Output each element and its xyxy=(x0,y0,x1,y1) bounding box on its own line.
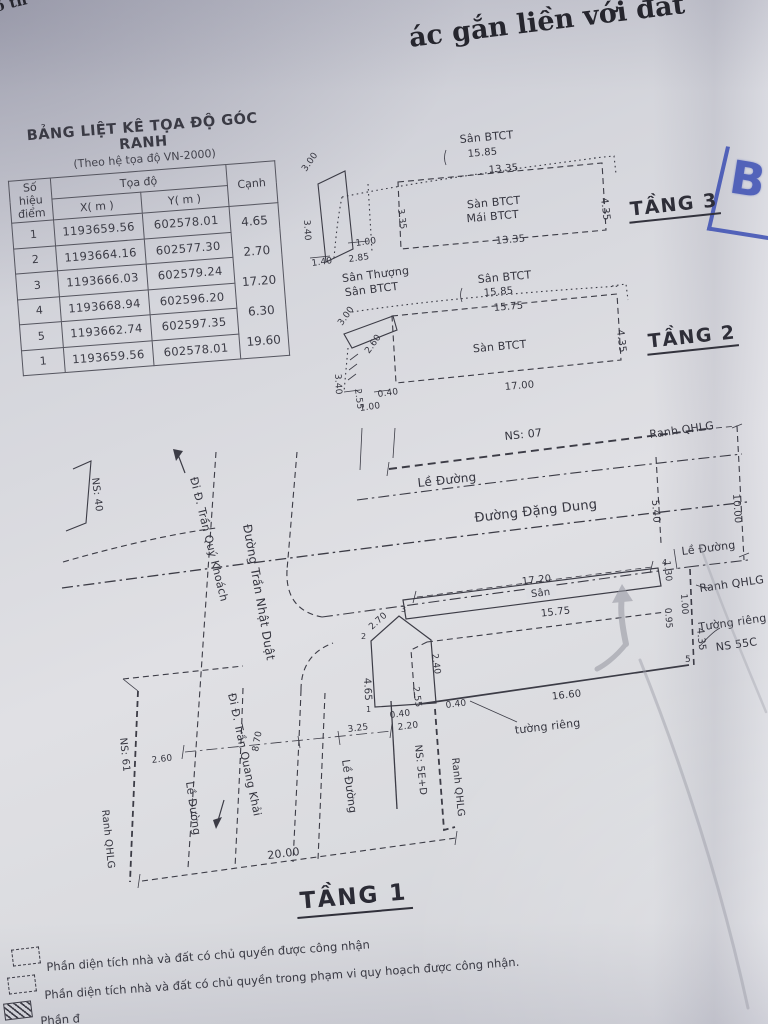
floor3-left-dotted xyxy=(334,197,342,258)
floor2-left-marks xyxy=(344,354,390,392)
dim-1-00-label: 1.00 xyxy=(678,594,689,616)
left-hatched-block xyxy=(371,616,436,707)
floor3-dim-slant: 3.00 xyxy=(300,151,320,174)
pen-arrow-shaft xyxy=(621,596,626,644)
inner-boundary-dashed xyxy=(411,612,666,702)
point-1-marker: 1 xyxy=(366,705,371,714)
pen-stray-curve-1 xyxy=(640,660,748,1008)
site-plan-drawing: Sân BTCT 15.85 13.35 Sàn BTCT Mái BTCT 4… xyxy=(0,0,768,1024)
le-duong-mid-label: Lề Đường xyxy=(339,759,359,814)
floor3-roof-corner xyxy=(594,156,616,174)
point-3-marker: 3 xyxy=(401,605,406,614)
dim-16-60-label: 16.60 xyxy=(551,688,582,702)
leader-tuong-rieng xyxy=(470,701,517,722)
street-tran-quang-khai-label: Đi Đ. Trần Quang Khải xyxy=(225,692,264,817)
floor2-dim-left: 3.40 xyxy=(332,374,343,395)
dim-0-95-label: 0.95 xyxy=(662,608,673,629)
ns40-bracket-symbol xyxy=(66,461,91,531)
floor2-inner-label: Sàn BTCT xyxy=(472,338,527,356)
san-label: Sân xyxy=(530,586,551,600)
boundary-lower-left xyxy=(123,666,243,679)
floor2-dim-s2: 1.00 xyxy=(359,401,381,414)
ns5ed-label: NS: 5E+D xyxy=(412,744,428,796)
le-duong-right-label: Lề Đường xyxy=(681,538,736,558)
ns61-label: NS: 61 xyxy=(117,737,132,772)
corner-tick xyxy=(123,679,138,691)
dim-8-70-label: 8.70 xyxy=(251,730,264,752)
legend-item-3: Phần đ xyxy=(40,1011,80,1024)
legend-icon-recognized xyxy=(11,946,41,966)
tuong-rieng-bottom-label: tường riêng xyxy=(514,716,581,736)
floor3-plan: Sân BTCT 15.85 13.35 Sàn BTCT Mái BTCT 4… xyxy=(300,128,616,299)
floor3-dim-right: 4.35 xyxy=(598,197,612,221)
ranh-qhlg-left-label: Ranh QHLG xyxy=(99,809,116,869)
ranh-qhlg-top-label: Ranh QHLG xyxy=(649,419,715,441)
street-centerline-dang-dung xyxy=(62,502,747,588)
road-edge-line xyxy=(293,643,333,862)
le-duong-left-label: Lề Đường xyxy=(183,781,203,836)
floor3-dim-top-outer: 15.85 xyxy=(467,146,497,160)
floor2-dim-bottom: 17.00 xyxy=(504,379,534,393)
ns40-label: NS: 40 xyxy=(89,477,104,512)
point-2-marker: 2 xyxy=(361,632,366,641)
street-tran-nhat-duat-label: Đường Trần Nhật Duật xyxy=(240,523,278,661)
dim-3-25-label: 3.25 xyxy=(347,723,369,735)
street-tran-quy-khoach-label: Đi Đ. Trần Quý Khoách xyxy=(187,476,231,603)
arrow-quang-khai-head xyxy=(213,817,222,829)
dim-ticks-top xyxy=(360,424,749,557)
legend-icon-planning xyxy=(7,974,37,994)
road-edge-tran-nhat-duat-right xyxy=(287,452,322,617)
right-boundary-line xyxy=(690,569,694,668)
floor2-roof-corner xyxy=(612,284,628,300)
dim-2-70-label: 2.70 xyxy=(367,611,389,632)
dim-15-75-label: 15.75 xyxy=(540,605,571,619)
floor2-dim-slant: 3.00 xyxy=(336,305,356,328)
site-plan: NS: 07 Ranh QHLG Lề Đường Đường Đặng Dun… xyxy=(62,419,767,888)
floor3-dim-b3: 1.00 xyxy=(355,236,377,249)
dim-2-60-label: 2.60 xyxy=(151,754,173,766)
scanned-survey-sheet: ồ th ác gắn liền với đất B BẢNG LIỆT KÊ … xyxy=(0,0,768,1024)
floor3-dim-b2: 2.85 xyxy=(348,252,370,265)
dim-20m-ticks xyxy=(138,831,457,888)
dim-10m-label: 10.00 xyxy=(730,493,743,523)
floor3-paren-mark xyxy=(445,150,447,165)
floor3-dim-b1: 1.40 xyxy=(311,256,333,269)
floor3-roof-dotted-line xyxy=(342,158,596,197)
ranh-qhlg-left-line xyxy=(130,691,138,882)
corner-arc-upper-left xyxy=(63,528,216,562)
ranh-qhlg-mid-label: Ranh QHLG xyxy=(449,757,466,817)
floor3-dim-left: 3.40 xyxy=(301,220,312,241)
floor2-dim-top: 15.75 xyxy=(493,300,523,314)
dim-5-40-label: 5.40 xyxy=(649,499,662,523)
floor3-dim-left-inner: 3.35 xyxy=(395,208,407,230)
legend-icon-hatched xyxy=(3,1000,33,1020)
dim-0-40-right-label: 0.40 xyxy=(445,699,467,711)
dim-2-40-label: 2.40 xyxy=(429,653,442,675)
floor2-dim-right: 4.35 xyxy=(614,329,628,353)
floor3-hatched-area xyxy=(318,171,353,262)
floor3-dim-bottom: 13.35 xyxy=(495,233,525,247)
pen-arrow-head xyxy=(612,584,633,603)
ranh-qhlg-right-label: Ranh QHLG xyxy=(699,573,765,595)
floor2-left-dotted xyxy=(344,348,348,392)
sidewalk-line-upper xyxy=(357,454,742,500)
dim-line-8-70 xyxy=(185,731,392,752)
ns07-label: NS: 07 xyxy=(504,426,543,443)
dim-4-65-label: 4.65 xyxy=(361,678,373,702)
dim-0-40-left-label: 0.40 xyxy=(389,709,411,721)
pen-arrow-tail xyxy=(597,644,626,669)
floor2-roof-label: Sân BTCT xyxy=(477,268,532,286)
dim-1-30-line xyxy=(674,549,677,569)
floor2-paren-mark xyxy=(461,288,463,302)
le-duong-line-mid xyxy=(318,693,325,860)
dim-2-20-label: 2.20 xyxy=(397,721,419,733)
floor3-roof-label: Sân BTCT xyxy=(459,128,514,146)
floor2-dim-s1: 0.40 xyxy=(377,387,399,400)
point-5-marker: 5 xyxy=(685,655,691,665)
arrow-quy-khoach-head xyxy=(173,449,183,461)
le-duong-upper-label: Lề Đường xyxy=(417,470,477,490)
floor3-dim-top: 13.35 xyxy=(488,162,518,176)
point-4-marker: 4 xyxy=(662,558,667,567)
floor2-dim-top-outer: 15.85 xyxy=(483,285,513,299)
